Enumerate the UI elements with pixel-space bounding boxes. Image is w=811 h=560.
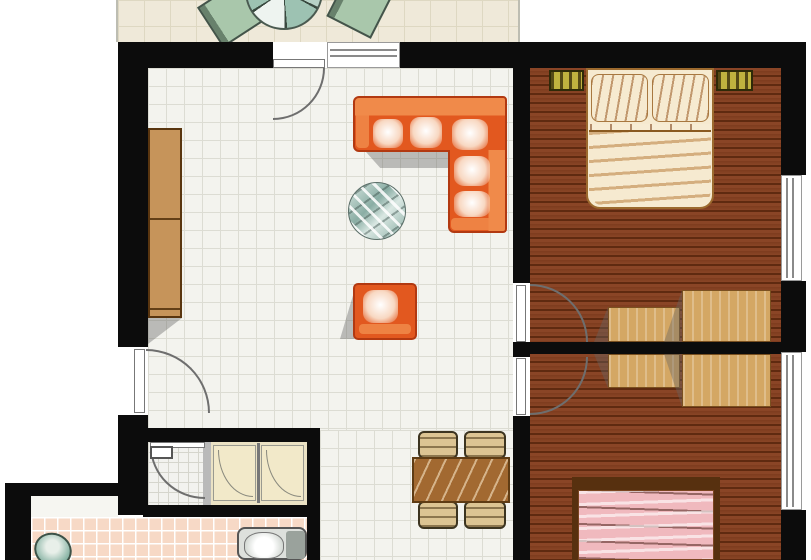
bedroom1-door-leaf: [516, 285, 526, 342]
top-window-glass-line: [330, 49, 397, 51]
wall-between-bedrooms: [530, 342, 781, 354]
shower-tray-right: [261, 445, 304, 501]
armchair-cushion: [363, 290, 398, 323]
bed1: [586, 68, 714, 209]
shower-divider: [257, 443, 260, 503]
bedroom2-door-leaf: [516, 358, 526, 415]
wc-cistern: [150, 446, 173, 459]
right-window-upper-glass-line2: [792, 178, 794, 278]
shower-tray-left: [213, 445, 256, 501]
sofa-cushion-4: [454, 156, 490, 186]
armchair-back: [359, 324, 411, 334]
bath-passage-floor: [31, 495, 118, 517]
wall-left-upper: [118, 42, 148, 347]
dining-chair-top-right: [464, 431, 506, 459]
sofa-cushion-5: [454, 191, 490, 217]
wall-right-lower: [781, 510, 806, 560]
washbasin-counter: [286, 531, 305, 559]
sofa-cushion-3: [452, 119, 488, 150]
sofa-cushion-1: [373, 119, 403, 148]
top-window: [327, 42, 400, 68]
wall-living-bedroom-mid: [513, 342, 530, 357]
balcony-door-leaf: [273, 59, 325, 68]
nightstand-left: [549, 70, 584, 91]
entry-door-leaf: [134, 349, 145, 413]
nightstand-right: [716, 70, 753, 91]
wall-bathroom-right: [307, 428, 320, 560]
washbasin-unit: [237, 527, 307, 560]
balcony-floor: [118, 0, 520, 42]
glass-coffee-table: [348, 182, 406, 240]
wall-bathroom-bottom: [143, 505, 307, 517]
sofa-armrest-left: [356, 100, 369, 148]
desk1-large: [682, 290, 771, 342]
garden-chair-right: [326, 0, 391, 39]
bed1-blanket: [589, 130, 711, 206]
balcony-right-edge: [518, 0, 520, 46]
floor-plan: [0, 0, 811, 560]
bed1-pillow-right: [652, 74, 709, 122]
balcony-left-edge: [116, 0, 118, 42]
right-window-upper-glass-line: [786, 178, 788, 278]
top-window-glass-line2: [330, 55, 397, 57]
wall-cabinet: [148, 128, 182, 318]
right-window-lower: [781, 352, 802, 510]
wall-living-bedroom-lower: [513, 416, 530, 560]
right-window-lower-glass-line: [786, 355, 788, 507]
desk2-large: [682, 354, 771, 407]
wall-living-bedroom-upper: [513, 68, 530, 283]
wall-bathroom-top: [143, 428, 320, 442]
bed1-pillow-left: [591, 74, 648, 122]
wall-right-middle: [781, 281, 806, 352]
sofa-armrest-bottom: [451, 218, 504, 230]
dining-table: [412, 457, 510, 503]
right-window-lower-glass-line2: [792, 355, 794, 507]
wall-top-right: [400, 42, 781, 68]
shower-tray-left-door-arc: [218, 450, 253, 497]
dining-chair-bottom-right: [464, 501, 506, 529]
sofa-shadow: [366, 152, 450, 168]
dining-chair-bottom-left: [418, 501, 458, 529]
wall-bath-extension-left: [5, 483, 31, 560]
wall-right-upper: [781, 42, 806, 175]
washbasin: [244, 532, 284, 559]
right-window-upper: [781, 175, 802, 281]
sofa-cushion-2: [410, 117, 442, 148]
shower-tray-right-door-arc: [266, 450, 301, 497]
bed2: [578, 490, 714, 560]
dining-chair-top-left: [418, 431, 458, 459]
